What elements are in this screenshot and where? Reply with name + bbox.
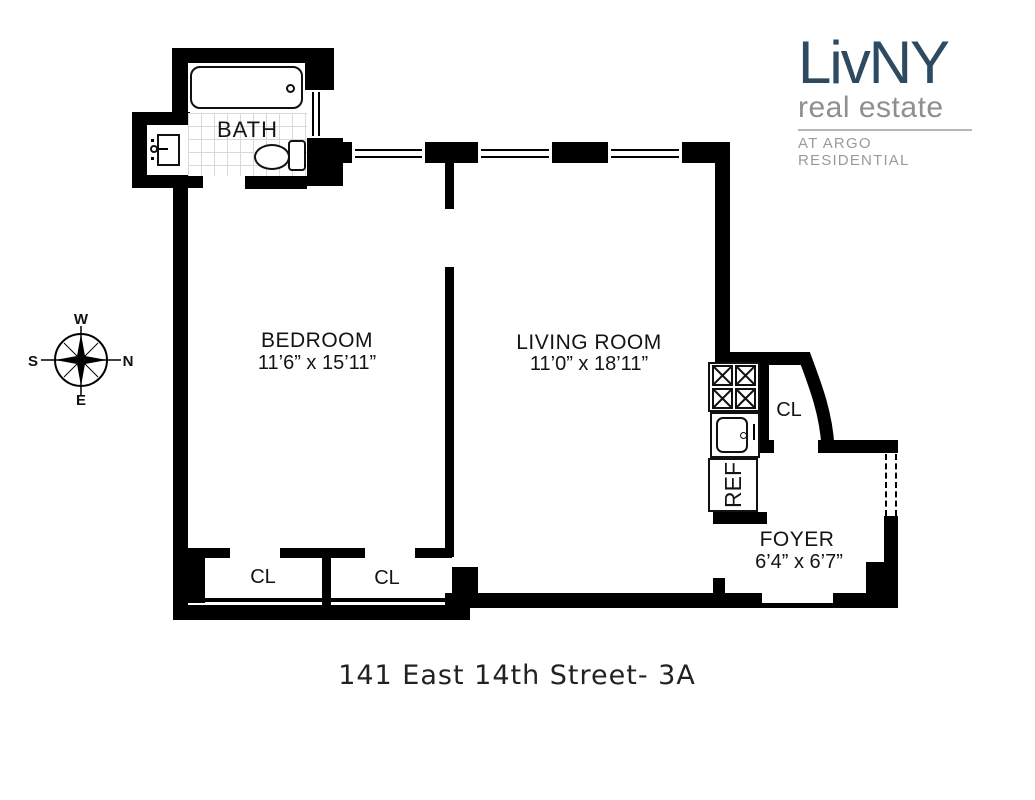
wall-bedroom-left (173, 186, 188, 620)
compass-south: S (28, 353, 38, 370)
wall-bedroom-living-divider-upper (445, 163, 454, 209)
foyer-dimensions: 6’4” x 6’7” (729, 551, 869, 574)
wall-sink-alcove-bottom (132, 175, 203, 188)
compass-east: E (76, 392, 86, 406)
bath-label: BATH (188, 117, 307, 143)
foyer-label: FOYER (737, 528, 857, 552)
kitchen-sink-drain (740, 432, 747, 439)
window-glass (355, 149, 422, 158)
wall-top-segment-1 (332, 142, 354, 163)
kitchen-counter-handle (753, 424, 755, 440)
refrigerator-label: REF (719, 455, 747, 515)
bath-sink-faucet-arm (158, 148, 168, 150)
entry-door-opening (885, 454, 897, 516)
floor-plan-page: REF BATH BEDROOM 11’6” x 15’11” LIVING R… (0, 0, 1035, 800)
wall-closet-left-block (188, 555, 205, 603)
living-room-label: LIVING ROOM (499, 331, 679, 355)
bath-sink-faucet (150, 145, 158, 153)
wall-bath-left (172, 48, 188, 118)
toilet-bowl (254, 144, 290, 170)
wall-bedroom-living-divider-lower (445, 267, 454, 557)
closet-floor-line (205, 598, 452, 602)
window-living-1 (478, 142, 552, 163)
compass-rose: W S N E (25, 310, 135, 406)
living-room-dimensions: 11’0” x 18’11” (499, 353, 679, 376)
compass-north: N (123, 353, 134, 370)
brand-subtitle: AT ARGO RESIDENTIAL (798, 135, 980, 169)
closet-bedroom-left-label: CL (238, 566, 288, 589)
address-title: 141 East 14th Street- 3A (252, 660, 782, 691)
brand-tagline: real estate (798, 93, 980, 123)
closet-foyer-label: CL (769, 399, 809, 422)
stove (708, 362, 760, 412)
closet-bedroom-right-label: CL (362, 567, 412, 590)
window-glass (312, 92, 320, 136)
bath-sink-handle-bottom (151, 157, 154, 160)
window-glass (481, 149, 549, 158)
bedroom-dimensions: 11’6” x 15’11” (227, 352, 407, 375)
wall-top-segment-3 (552, 142, 608, 163)
compass-west: W (74, 311, 89, 328)
wall-living-right (715, 163, 730, 355)
wall-top-segment-4 (682, 142, 730, 163)
wall-divider-foot-chunk (452, 567, 478, 607)
bath-sink-handle-top (151, 139, 154, 142)
brand-logo: LivNY real estate AT ARGO RESIDENTIAL (798, 34, 980, 169)
brand-name: LivNY (798, 34, 980, 92)
foyer-wall-recess (762, 593, 833, 603)
window-living-2 (608, 142, 682, 163)
toilet-tank (288, 140, 306, 171)
brand-divider (798, 129, 972, 131)
bedroom-label: BEDROOM (227, 329, 407, 353)
wall-top-segment-2 (425, 142, 478, 163)
wall-foyer-stub (713, 578, 725, 595)
bathtub-drain (286, 84, 295, 93)
wall-closet-top-3 (415, 548, 452, 558)
window-bath (305, 90, 327, 138)
wall-bath-right-upper (305, 48, 334, 90)
window-glass (611, 149, 679, 158)
window-bedroom (352, 142, 425, 163)
bath-sink (157, 134, 180, 166)
wall-bath-bottom (245, 176, 307, 189)
